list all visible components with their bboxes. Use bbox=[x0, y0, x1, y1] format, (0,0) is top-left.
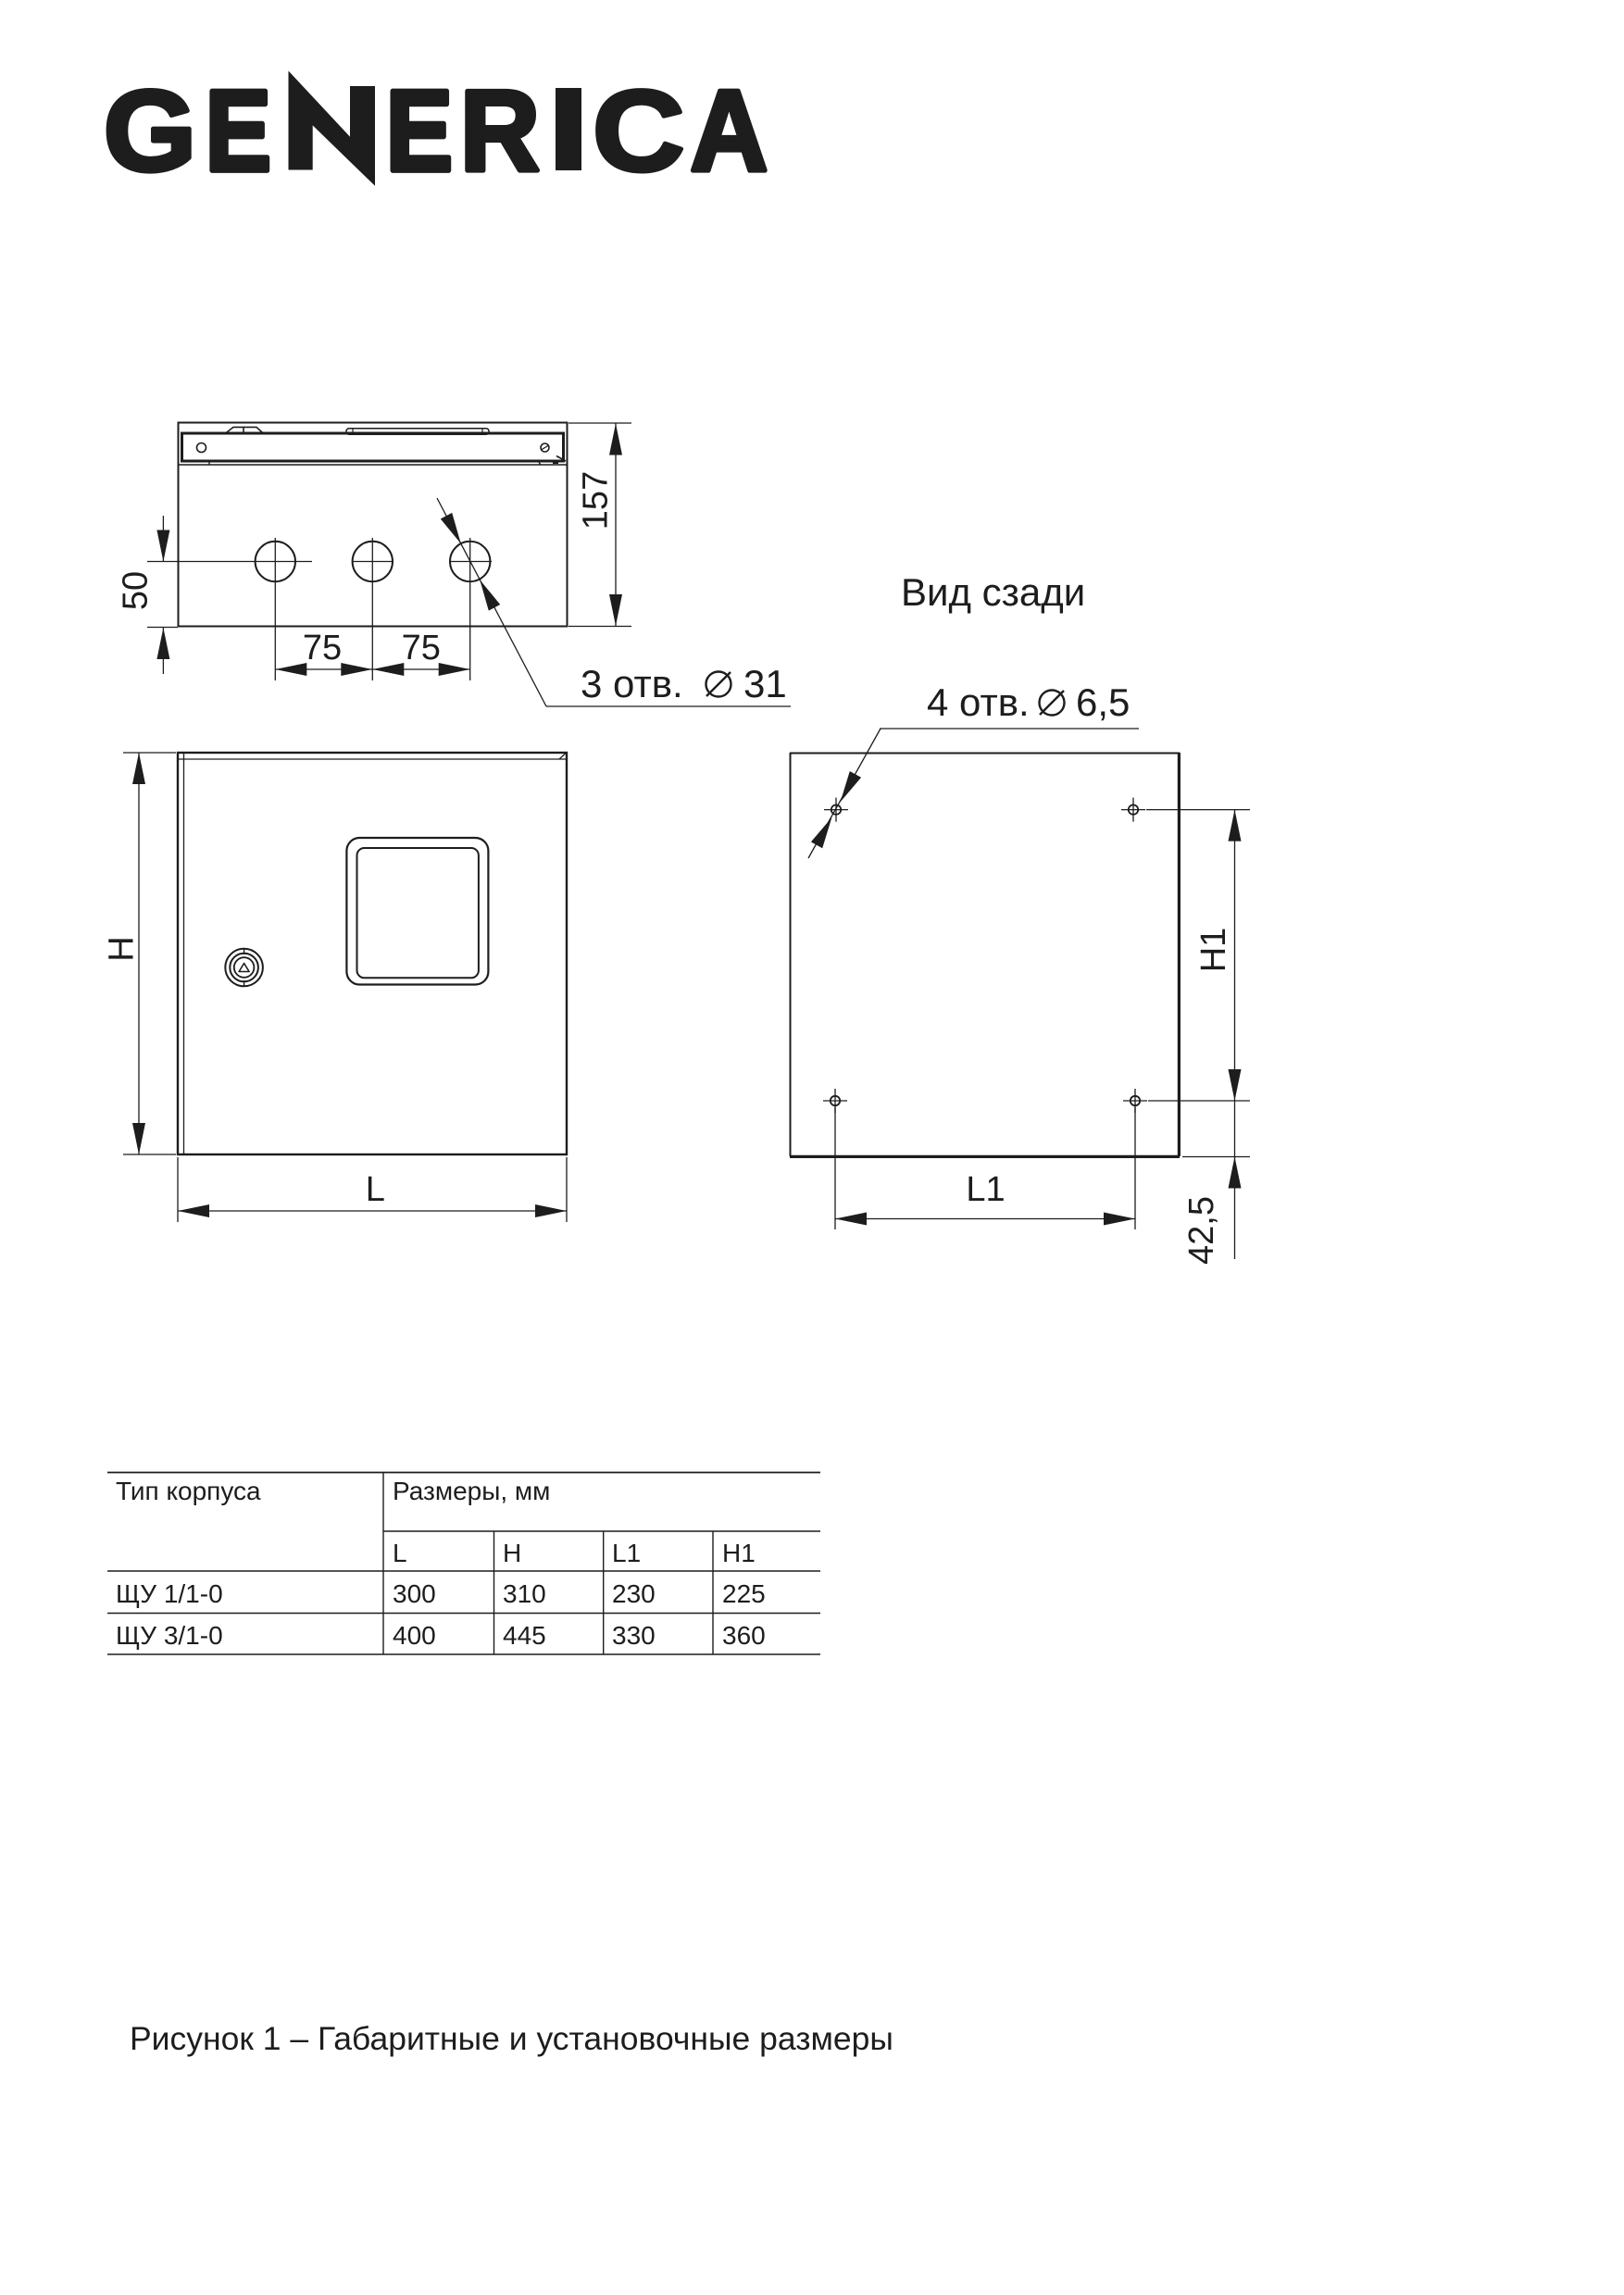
svg-text:300: 300 bbox=[393, 1579, 436, 1608]
svg-text:6,5: 6,5 bbox=[1076, 680, 1130, 724]
svg-text:Рисунок 1 – Габаритные и устан: Рисунок 1 – Габаритные и установочные ра… bbox=[130, 2020, 893, 2057]
svg-text:H1: H1 bbox=[722, 1539, 756, 1567]
svg-text:H: H bbox=[103, 936, 142, 961]
svg-text:H: H bbox=[503, 1539, 521, 1567]
svg-text:L1: L1 bbox=[966, 1170, 1005, 1209]
svg-text:31: 31 bbox=[743, 662, 787, 705]
svg-text:4 отв.: 4 отв. bbox=[927, 680, 1030, 724]
svg-text:G: G bbox=[104, 66, 196, 194]
svg-text:ЩУ 3/1-0: ЩУ 3/1-0 bbox=[116, 1621, 223, 1650]
svg-text:Размеры, мм: Размеры, мм bbox=[393, 1477, 550, 1505]
svg-text:L: L bbox=[393, 1539, 407, 1567]
svg-text:A: A bbox=[691, 67, 768, 194]
svg-text:Тип корпуса: Тип корпуса bbox=[116, 1477, 261, 1505]
svg-text:42,5: 42,5 bbox=[1182, 1196, 1221, 1265]
svg-text:3 отв.: 3 отв. bbox=[581, 662, 683, 705]
svg-text:C: C bbox=[593, 66, 684, 194]
svg-text:157: 157 bbox=[577, 471, 616, 530]
svg-text:400: 400 bbox=[393, 1621, 436, 1650]
svg-text:E: E bbox=[386, 67, 453, 194]
svg-text:75: 75 bbox=[303, 629, 342, 667]
svg-text:Вид сзади: Вид сзади bbox=[901, 570, 1085, 614]
svg-text:360: 360 bbox=[722, 1621, 766, 1650]
svg-text:310: 310 bbox=[503, 1579, 546, 1608]
svg-text:50: 50 bbox=[116, 571, 155, 610]
svg-text:E: E bbox=[206, 66, 271, 194]
svg-text:230: 230 bbox=[612, 1579, 656, 1608]
svg-text:75: 75 bbox=[402, 629, 441, 667]
svg-text:H1: H1 bbox=[1194, 928, 1233, 973]
svg-text:330: 330 bbox=[612, 1621, 656, 1650]
svg-text:445: 445 bbox=[503, 1621, 546, 1650]
svg-text:L1: L1 bbox=[612, 1539, 641, 1567]
svg-text:225: 225 bbox=[722, 1579, 766, 1608]
svg-text:ЩУ 1/1-0: ЩУ 1/1-0 bbox=[116, 1579, 223, 1608]
svg-text:R: R bbox=[460, 67, 540, 194]
svg-text:L: L bbox=[366, 1170, 385, 1209]
